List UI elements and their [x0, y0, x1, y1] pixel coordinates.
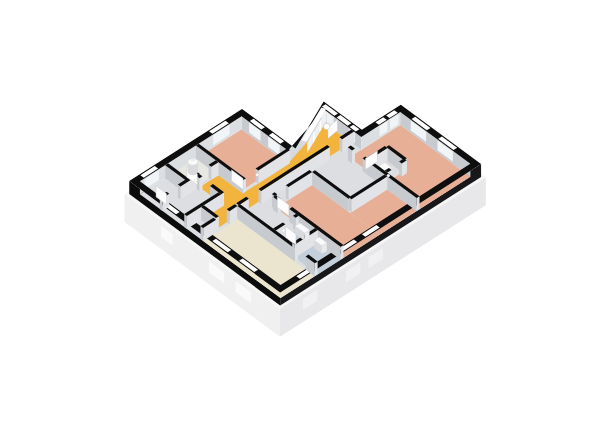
pendant-light — [324, 123, 330, 129]
door-handle-dot — [387, 174, 390, 177]
bedroom-middle-upper-west-wall-end — [349, 197, 352, 212]
floorplan-3d-render — [0, 0, 600, 424]
living-west-wall-end — [227, 209, 230, 224]
wc-east-wall-end — [178, 184, 181, 199]
door-handle-dot — [194, 179, 197, 182]
hallway-east-wall-end — [339, 137, 342, 152]
hallway-end-wall-end — [216, 216, 219, 231]
bathroom-north-wall-end — [341, 245, 344, 260]
floorplan-viewport — [0, 0, 600, 424]
closet-east-wall-end — [399, 161, 402, 176]
hall-south-wall-end — [221, 192, 224, 207]
living-west-wall-end — [200, 226, 203, 241]
door-handle-dot — [282, 229, 285, 232]
hall-south-wall-end — [200, 176, 203, 191]
door-handle-dot — [256, 173, 259, 176]
bedroom-right-south-wall-end — [352, 149, 355, 164]
living-north-wall-end — [315, 261, 318, 276]
bedroom-right-south-wall-end — [417, 196, 420, 211]
hallway-east-wall-end — [259, 189, 262, 204]
storage-east-wall-end — [184, 214, 187, 229]
bedroom-middle-west-wall-end — [286, 185, 289, 200]
wc-east-wall-end — [209, 165, 212, 180]
bathroom-divider-wall-end — [292, 243, 295, 258]
water-heater-cap — [191, 158, 196, 161]
